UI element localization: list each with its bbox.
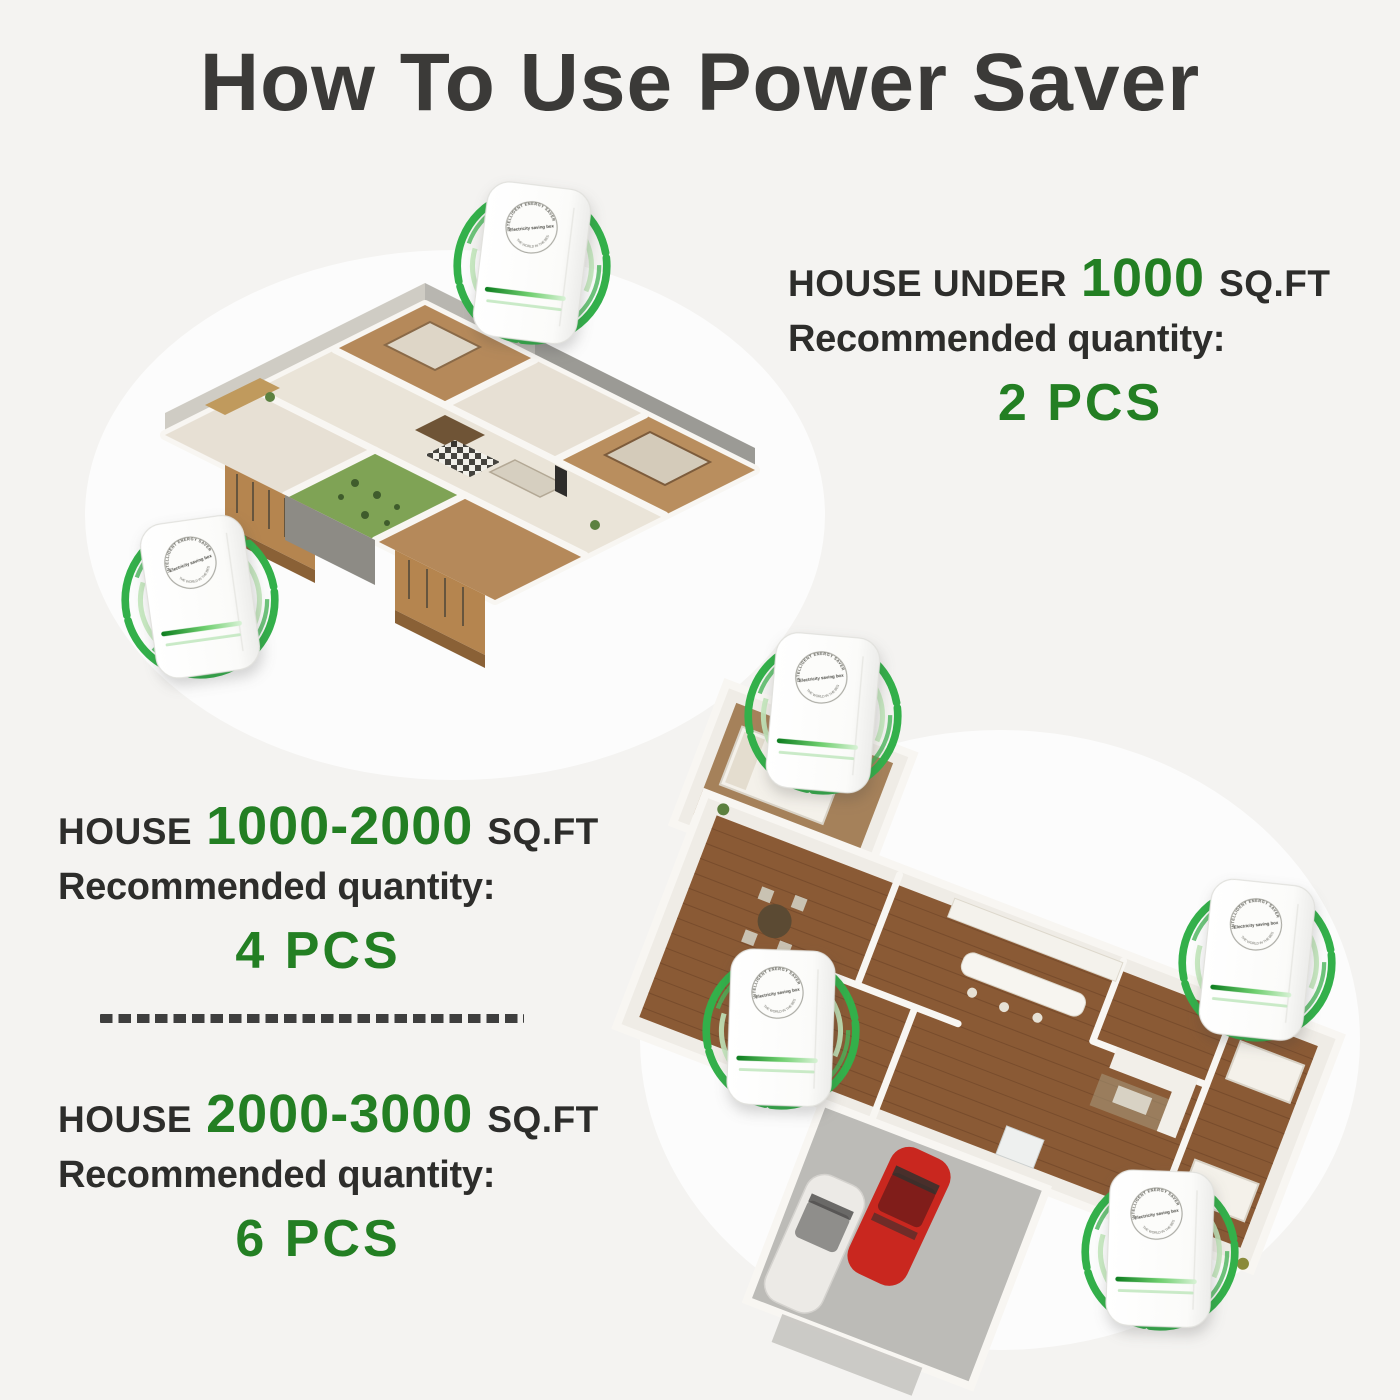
power-saver-plug: [466, 176, 599, 350]
power-saver-plug: [721, 945, 841, 1110]
power-saver-plug: [759, 628, 887, 798]
power-saver-device: [1075, 1167, 1245, 1337]
power-saver-device: [447, 181, 617, 351]
page-title: How To Use Power Saver: [0, 38, 1400, 128]
power-saver-plug: [132, 509, 267, 684]
house-size-heading: HOUSE 2000-3000 SQ.FT: [58, 1083, 618, 1145]
power-saver-plug: [1192, 874, 1322, 1046]
recommended-quantity-label: Recommended quantity:: [58, 866, 618, 909]
power-saver-device: [696, 946, 866, 1116]
house-size-heading: HOUSE UNDER 1000 SQ.FT: [788, 247, 1373, 309]
house-suffix: SQ.FT: [1219, 263, 1330, 305]
power-saver-plug: [1100, 1166, 1220, 1331]
house-prefix: HOUSE: [58, 1099, 192, 1141]
power-saver-device: [115, 515, 285, 685]
house-size-heading: HOUSE 1000-2000 SQ.FT: [58, 795, 618, 857]
section-under-1000-sqft: HOUSE UNDER 1000 SQ.FT Recommended quant…: [788, 247, 1373, 433]
house-suffix: SQ.FT: [487, 811, 598, 853]
house-prefix: HOUSE: [58, 811, 192, 853]
house-suffix: SQ.FT: [487, 1099, 598, 1141]
house-size-value: 1000-2000: [206, 795, 473, 857]
quantity-value: 2 PCS: [788, 373, 1373, 433]
section-2000-3000-sqft: HOUSE 2000-3000 SQ.FT Recommended quanti…: [58, 1083, 618, 1269]
quantity-value: 6 PCS: [58, 1209, 618, 1269]
dashed-separator: [100, 1014, 524, 1023]
infographic-canvas: INTELLIGENT ENERGY SAVER Electricity sav…: [0, 0, 1400, 1400]
recommended-quantity-label: Recommended quantity:: [788, 318, 1373, 361]
section-1000-2000-sqft: HOUSE 1000-2000 SQ.FT Recommended quanti…: [58, 795, 618, 981]
house-size-value: 2000-3000: [206, 1083, 473, 1145]
recommended-quantity-label: Recommended quantity:: [58, 1154, 618, 1197]
power-saver-device: [1172, 878, 1342, 1048]
power-saver-device: [738, 631, 908, 801]
house-size-value: 1000: [1081, 247, 1205, 309]
quantity-value: 4 PCS: [58, 921, 618, 981]
house-prefix: HOUSE UNDER: [788, 263, 1067, 305]
